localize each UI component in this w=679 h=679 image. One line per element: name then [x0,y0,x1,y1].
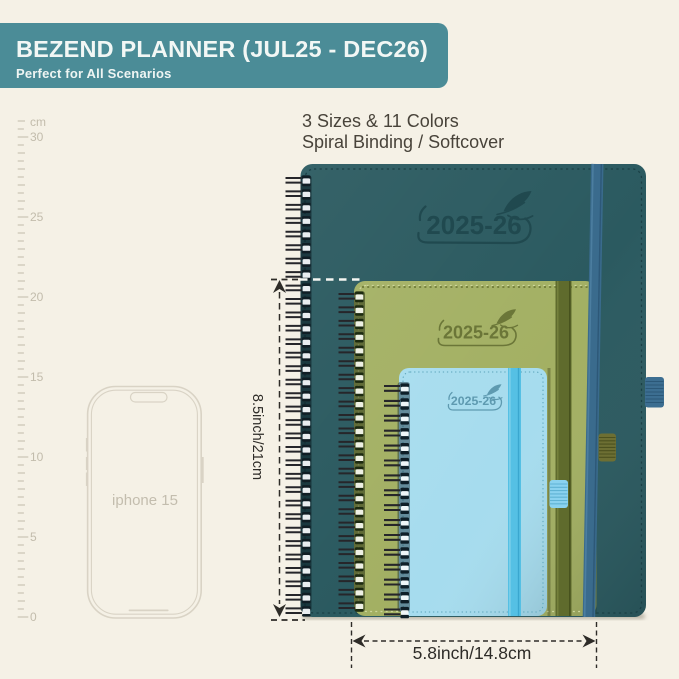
svg-text:iphone 15: iphone 15 [112,492,178,509]
svg-text:5: 5 [30,530,37,544]
svg-text:15: 15 [30,370,44,384]
svg-text:25: 25 [30,210,44,224]
svg-text:30: 30 [30,130,44,144]
svg-text:2025-26: 2025-26 [443,323,509,343]
svg-text:0: 0 [30,610,37,624]
svg-text:20: 20 [30,290,44,304]
svg-text:2025-26: 2025-26 [426,210,521,240]
svg-text:cm: cm [30,115,46,129]
svg-text:10: 10 [30,450,44,464]
svg-text:2025-26: 2025-26 [451,394,496,408]
